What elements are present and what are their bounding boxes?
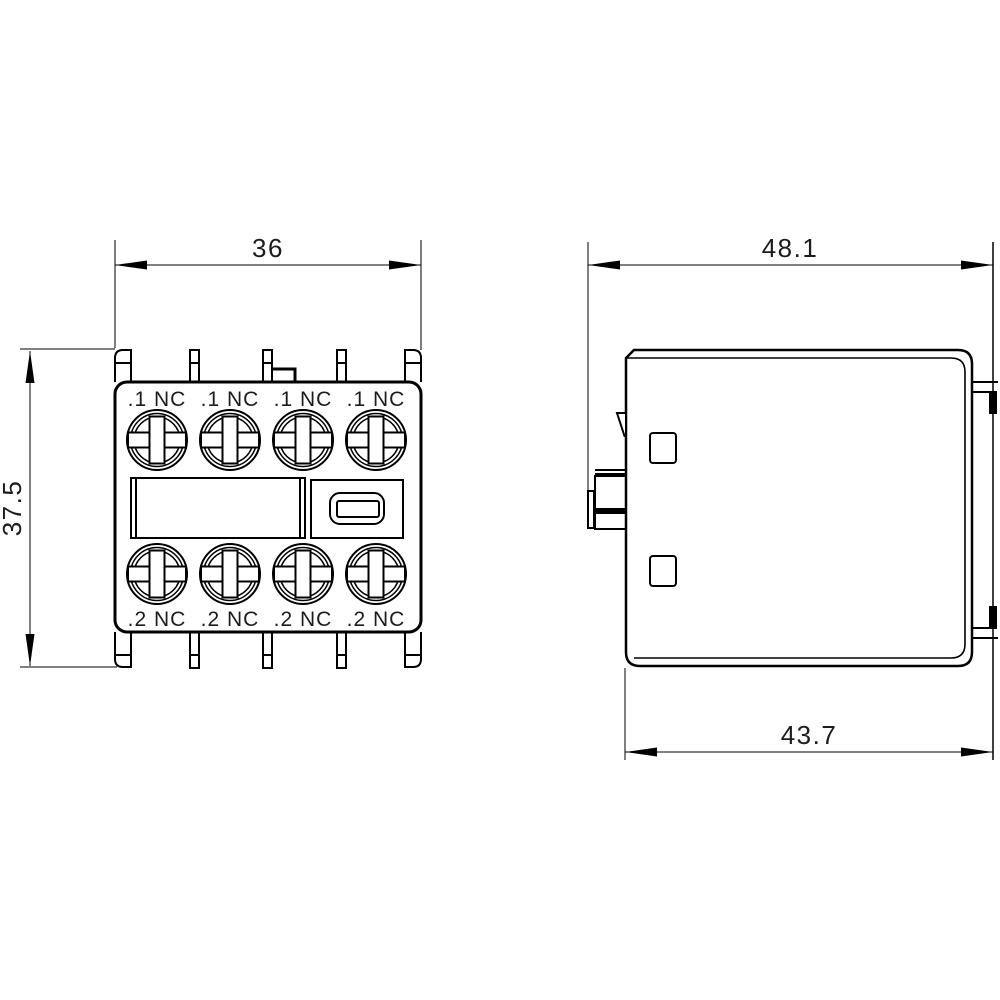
fixing-tab-bottom bbox=[972, 607, 998, 638]
screw-terminal bbox=[346, 410, 406, 470]
terminal-labels-top: .1 NC .1 NC .1 NC .1 NC bbox=[128, 388, 406, 411]
terminal-label: .2 NC bbox=[274, 608, 333, 631]
terminal-label: .1 NC bbox=[201, 388, 260, 411]
latch-wedge bbox=[617, 413, 626, 436]
arrowhead-top bbox=[26, 351, 35, 383]
technical-drawing-canvas: .1 NC .1 NC .1 NC .1 NC .2 NC .2 NC .2 N… bbox=[0, 0, 1000, 1000]
label-field bbox=[131, 478, 305, 538]
terminal-label: .1 NC bbox=[347, 388, 406, 411]
front-view-top-tabs bbox=[115, 350, 421, 382]
dim-label-36: 36 bbox=[252, 233, 284, 263]
arrowhead-left bbox=[115, 261, 147, 270]
terminal-label: .2 NC bbox=[128, 608, 187, 631]
arrowhead-right bbox=[389, 261, 421, 270]
dim-label-37-5: 37.5 bbox=[0, 480, 27, 537]
arrowhead-left bbox=[588, 261, 620, 270]
screw-terminal bbox=[273, 410, 333, 470]
terminal-label: .1 NC bbox=[128, 388, 187, 411]
screw-terminal bbox=[200, 544, 260, 604]
clip-square-top bbox=[650, 433, 676, 463]
arrowhead-bottom bbox=[26, 634, 35, 666]
side-view bbox=[588, 242, 998, 760]
clip-square-bottom bbox=[650, 556, 676, 586]
actuator-window bbox=[311, 480, 403, 538]
fixing-tab-top bbox=[972, 382, 998, 413]
dimension-depth-48-1: 48.1 bbox=[588, 233, 993, 490]
terminal-labels-bottom: .2 NC .2 NC .2 NC .2 NC bbox=[128, 608, 406, 631]
screw-terminal-row-bottom bbox=[127, 544, 406, 604]
dim-label-43-7: 43.7 bbox=[781, 720, 838, 750]
plug-connector bbox=[588, 470, 626, 529]
screw-terminal-row-top bbox=[127, 410, 406, 470]
dimension-height-37-5: 37.5 bbox=[0, 349, 117, 667]
dimension-depth-43-7: 43.7 bbox=[625, 668, 993, 760]
side-housing-inner-contour bbox=[627, 358, 965, 658]
screw-terminal bbox=[127, 544, 187, 604]
screw-terminal bbox=[127, 410, 187, 470]
side-housing-outline bbox=[626, 350, 972, 666]
screw-terminal bbox=[346, 544, 406, 604]
fixing-hook-bottom bbox=[990, 607, 996, 628]
arrowhead-right bbox=[961, 261, 993, 270]
drawing-svg: .1 NC .1 NC .1 NC .1 NC .2 NC .2 NC .2 N… bbox=[0, 0, 1000, 1000]
terminal-label: .2 NC bbox=[347, 608, 406, 631]
arrowhead-left bbox=[625, 748, 657, 757]
screw-terminal bbox=[200, 410, 260, 470]
terminal-label: .1 NC bbox=[274, 388, 333, 411]
screw-terminal bbox=[273, 544, 333, 604]
terminal-label: .2 NC bbox=[201, 608, 260, 631]
fixing-hook-top bbox=[990, 392, 996, 413]
dim-label-48-1: 48.1 bbox=[762, 233, 819, 263]
dimension-width-36: 36 bbox=[115, 233, 421, 350]
arrowhead-right bbox=[961, 748, 993, 757]
front-view-bottom-tabs bbox=[115, 632, 421, 668]
front-view: .1 NC .1 NC .1 NC .1 NC .2 NC .2 NC .2 N… bbox=[115, 350, 421, 668]
